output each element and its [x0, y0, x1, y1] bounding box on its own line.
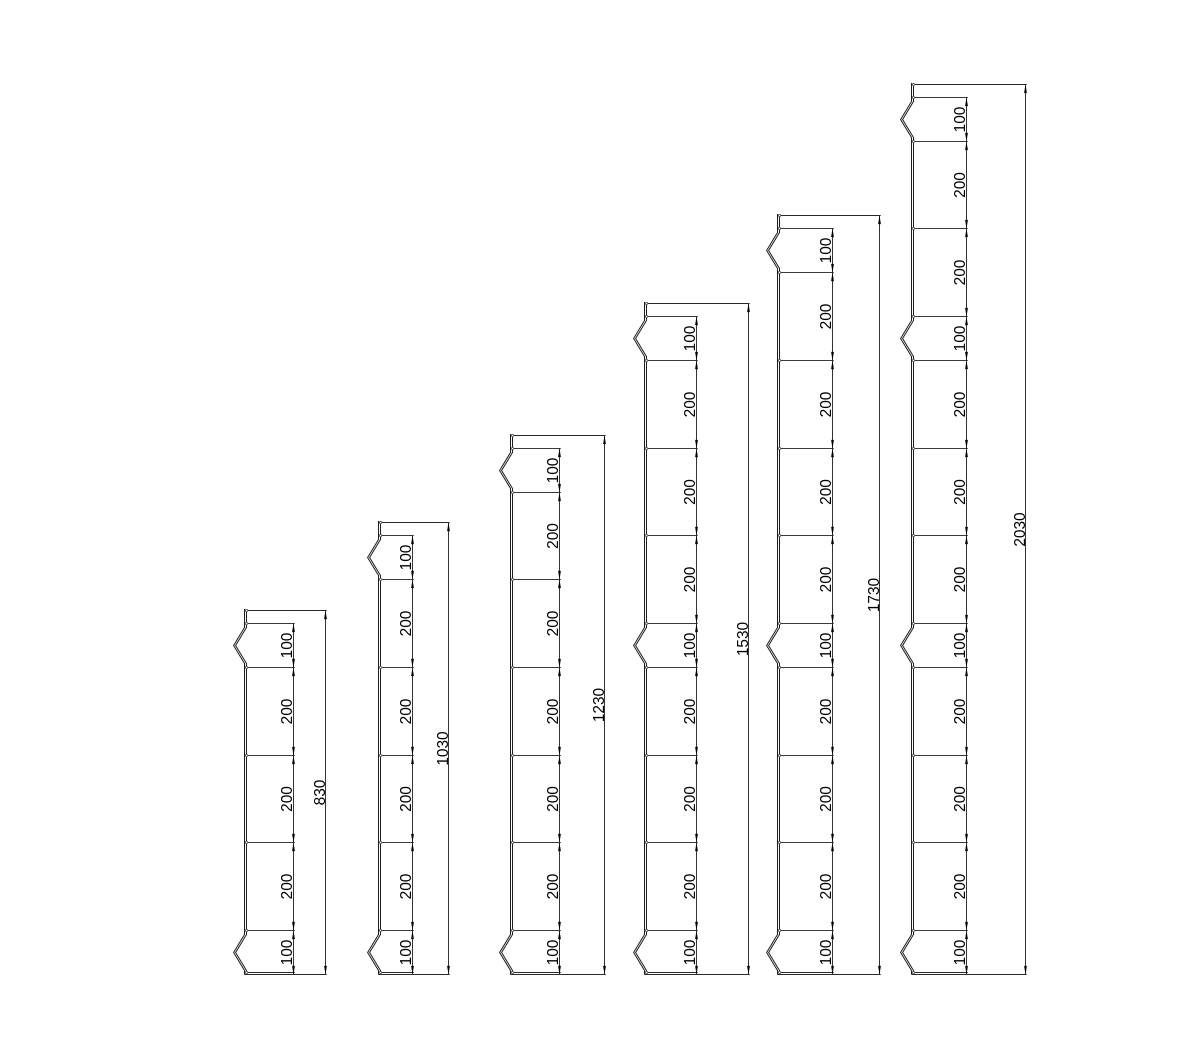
svg-text:100: 100 — [279, 940, 296, 966]
svg-text:200: 200 — [818, 567, 835, 593]
svg-text:200: 200 — [682, 567, 699, 593]
svg-text:200: 200 — [952, 392, 969, 418]
svg-text:100: 100 — [682, 326, 699, 352]
svg-text:200: 200 — [398, 611, 415, 637]
svg-text:200: 200 — [818, 786, 835, 812]
svg-text:200: 200 — [398, 699, 415, 725]
svg-text:200: 200 — [545, 874, 562, 900]
svg-text:100: 100 — [952, 326, 969, 352]
svg-text:200: 200 — [818, 304, 835, 330]
svg-text:200: 200 — [682, 874, 699, 900]
svg-text:100: 100 — [545, 940, 562, 966]
svg-text:100: 100 — [952, 633, 969, 659]
svg-text:100: 100 — [818, 238, 835, 264]
svg-text:1030: 1030 — [435, 731, 452, 765]
svg-text:200: 200 — [545, 611, 562, 637]
svg-text:200: 200 — [279, 786, 296, 812]
svg-text:100: 100 — [818, 633, 835, 659]
svg-text:1730: 1730 — [866, 578, 883, 612]
svg-text:100: 100 — [398, 545, 415, 571]
svg-text:200: 200 — [682, 786, 699, 812]
svg-text:200: 200 — [952, 699, 969, 725]
svg-text:200: 200 — [545, 699, 562, 725]
svg-text:100: 100 — [952, 940, 969, 966]
svg-text:200: 200 — [545, 786, 562, 812]
svg-text:200: 200 — [952, 479, 969, 505]
svg-text:200: 200 — [952, 786, 969, 812]
svg-text:100: 100 — [682, 633, 699, 659]
svg-text:100: 100 — [682, 940, 699, 966]
svg-text:200: 200 — [818, 479, 835, 505]
svg-text:100: 100 — [952, 107, 969, 133]
svg-text:200: 200 — [952, 172, 969, 198]
svg-text:100: 100 — [398, 940, 415, 966]
svg-text:200: 200 — [818, 699, 835, 725]
svg-text:100: 100 — [545, 458, 562, 484]
svg-text:200: 200 — [682, 479, 699, 505]
svg-text:200: 200 — [952, 260, 969, 286]
svg-text:200: 200 — [398, 786, 415, 812]
svg-text:200: 200 — [818, 874, 835, 900]
svg-text:200: 200 — [682, 392, 699, 418]
svg-text:1230: 1230 — [591, 688, 608, 722]
svg-text:200: 200 — [952, 874, 969, 900]
svg-text:200: 200 — [545, 523, 562, 549]
svg-text:100: 100 — [279, 633, 296, 659]
svg-text:200: 200 — [952, 567, 969, 593]
svg-text:200: 200 — [279, 874, 296, 900]
svg-text:830: 830 — [312, 780, 329, 806]
svg-text:200: 200 — [279, 699, 296, 725]
svg-text:200: 200 — [682, 699, 699, 725]
svg-text:100: 100 — [818, 940, 835, 966]
svg-text:2030: 2030 — [1012, 512, 1029, 546]
svg-text:200: 200 — [818, 392, 835, 418]
svg-text:1530: 1530 — [735, 622, 752, 656]
svg-text:200: 200 — [398, 874, 415, 900]
